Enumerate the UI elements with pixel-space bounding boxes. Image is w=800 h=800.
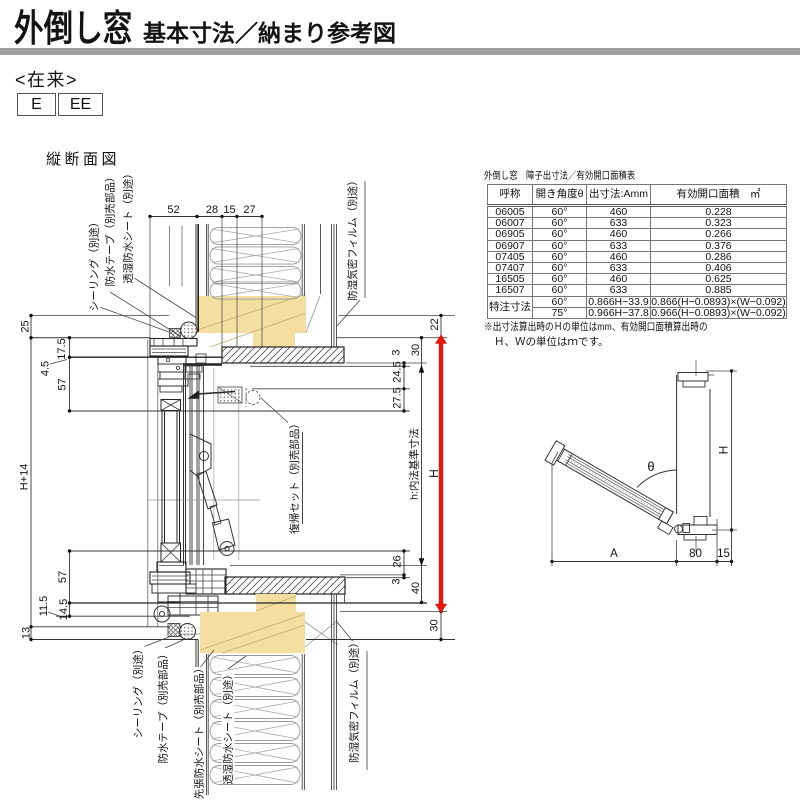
svg-text:40: 40 [410, 582, 422, 594]
svg-text:防湿気密フィルム（別途）: 防湿気密フィルム（別途） [346, 175, 359, 301]
svg-text:80: 80 [689, 548, 702, 560]
svg-text:H: H [717, 446, 731, 455]
svg-text:H+14: H+14 [18, 464, 30, 491]
svg-text:15: 15 [223, 204, 235, 216]
svg-text:A: A [610, 548, 618, 560]
svg-text:14.5: 14.5 [58, 599, 70, 620]
svg-text:28: 28 [206, 204, 218, 216]
svg-text:シーリング（別途）: シーリング（別途） [132, 644, 145, 739]
svg-text:24.5: 24.5 [391, 361, 403, 382]
svg-text:3: 3 [390, 349, 402, 355]
svg-text:透湿防水シート（別途）: 透湿防水シート（別途） [222, 669, 235, 785]
svg-text:シーリング（別途）: シーリング（別途） [88, 217, 101, 312]
svg-text:3: 3 [390, 578, 402, 584]
svg-text:防水テープ（別売部品）: 防水テープ（別売部品） [104, 172, 117, 287]
svg-text:透湿防水シート（別途）: 透湿防水シート（別途） [122, 168, 135, 284]
svg-text:先張防水シート（別売部品）: 先張防水シート（別売部品） [193, 663, 206, 800]
svg-text:17.5: 17.5 [56, 338, 68, 359]
svg-text:15: 15 [717, 548, 730, 560]
svg-text:h:内法基準寸法: h:内法基準寸法 [408, 428, 421, 500]
svg-text:θ: θ [647, 459, 654, 474]
svg-text:27: 27 [243, 204, 255, 216]
svg-text:4.5: 4.5 [39, 361, 51, 376]
svg-text:27.5: 27.5 [391, 387, 403, 408]
svg-text:防湿気密フィルム（別途）: 防湿気密フィルム（別途） [348, 637, 361, 763]
svg-text:22: 22 [429, 318, 441, 330]
svg-text:25: 25 [19, 320, 31, 332]
svg-text:防水テープ（別売部品）: 防水テープ（別売部品） [157, 649, 170, 764]
svg-text:11.5: 11.5 [38, 596, 50, 617]
svg-text:30: 30 [428, 619, 440, 631]
svg-text:52: 52 [167, 204, 179, 216]
svg-text:H: H [427, 469, 441, 478]
svg-text:57: 57 [57, 571, 69, 583]
svg-text:57: 57 [56, 378, 68, 390]
svg-text:13: 13 [20, 627, 32, 639]
svg-text:30: 30 [410, 344, 422, 356]
svg-text:復帰セット（別売部品）: 復帰セット（別売部品） [288, 418, 301, 534]
svg-text:26: 26 [391, 555, 403, 567]
